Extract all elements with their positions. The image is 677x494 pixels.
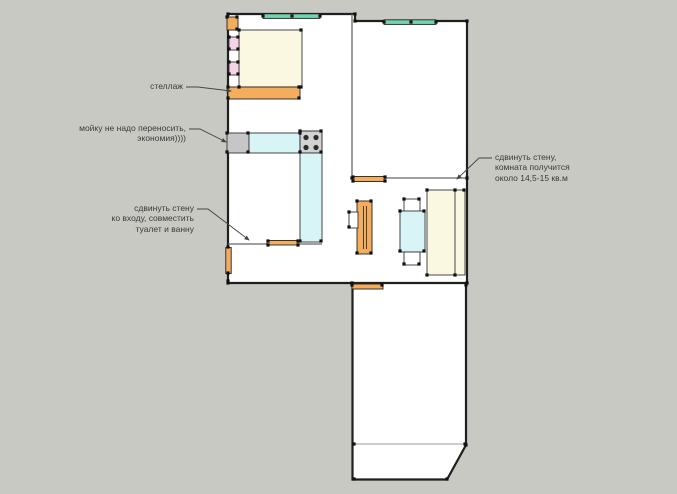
endpoint-dot [296, 239, 299, 242]
endpoint-dot [425, 273, 428, 276]
endpoint-dot [290, 14, 293, 17]
endpoint-dot [380, 283, 383, 286]
endpoint-dot [355, 199, 358, 202]
endpoint-dot [297, 96, 300, 99]
endpoint-dot [347, 210, 350, 213]
endpoint-dot [226, 279, 229, 282]
endpoint-dot [225, 15, 228, 18]
endpoint-dot [352, 442, 355, 445]
door-entrance [226, 248, 231, 274]
leader-line-sink [189, 129, 226, 142]
endpoint-dot [353, 12, 356, 15]
endpoint-dot [319, 129, 322, 132]
chair-top [404, 199, 420, 212]
endpoint-dot [266, 243, 269, 246]
endpoint-dot [318, 14, 321, 17]
wardrobe [357, 201, 372, 254]
endpoint-dot [299, 28, 302, 31]
floor-plan-canvas: стеллаж мойку не надо переносить, эконом… [0, 0, 677, 494]
endpoint-dot [298, 150, 301, 153]
endpoint-dot [319, 150, 322, 153]
endpoint-dot [355, 251, 358, 254]
endpoint-dot [353, 19, 356, 22]
sofa [427, 190, 465, 275]
endpoint-dot [445, 477, 448, 480]
endpoint-dot [422, 209, 425, 212]
endpoint-dot [236, 60, 239, 63]
stove-burner [303, 145, 308, 150]
endpoint-dot [417, 262, 420, 265]
kitchen-counter-top [249, 133, 300, 153]
endpoint-dot [409, 20, 412, 23]
endpoint-dot [226, 85, 229, 88]
endpoint-dot [434, 20, 437, 23]
endpoint-dot [465, 19, 468, 22]
endpoint-dot [453, 188, 456, 191]
endpoint-dot [261, 14, 264, 17]
endpoint-dot [425, 188, 428, 191]
endpoint-dot [227, 60, 230, 63]
stove-burner [303, 135, 308, 140]
endpoint-dot [369, 251, 372, 254]
door-room [353, 177, 385, 182]
endpoint-dot [246, 150, 249, 153]
door-balcony [352, 284, 383, 289]
floor-plan-drawing [0, 0, 677, 494]
endpoint-dot [351, 179, 354, 182]
bed [239, 30, 302, 87]
endpoint-dot [465, 176, 468, 179]
annotation-shelf: стеллаж [150, 81, 183, 91]
endpoint-dot [383, 179, 386, 182]
door-kitchen [267, 241, 298, 246]
endpoint-dot [402, 262, 405, 265]
stove-burner [313, 135, 318, 140]
annotation-entry-wall: сдвинуть стену ко входу, совместить туал… [112, 203, 194, 234]
endpoint-dot [350, 283, 353, 286]
endpoint-dot [266, 239, 269, 242]
endpoint-dot [296, 243, 299, 246]
sink [227, 133, 249, 153]
endpoint-dot [462, 188, 465, 191]
endpoint-dot [383, 175, 386, 178]
endpoint-dot [226, 245, 229, 248]
endpoint-dot [227, 35, 230, 38]
endpoint-dot [453, 273, 456, 276]
annotation-room-wall: сдвинуть стену, комната получится около … [495, 152, 570, 183]
leader-line-shelf [186, 87, 231, 91]
endpoint-dot [237, 85, 240, 88]
kitchen-counter-side [300, 153, 322, 242]
stove-burner [313, 145, 318, 150]
annotation-sink: мойку не надо переносить, экономия)))) [79, 123, 186, 144]
endpoint-dot [298, 129, 301, 132]
endpoint-dot [246, 131, 249, 134]
endpoint-dot [237, 28, 240, 31]
balcony-floor-area [353, 283, 467, 480]
endpoint-dot [352, 477, 355, 480]
endpoint-dot [236, 72, 239, 75]
endpoint-dot [226, 12, 229, 15]
endpoint-dot [236, 47, 239, 50]
endpoint-dot [319, 239, 322, 242]
endpoint-dot [347, 225, 350, 228]
endpoint-dot [422, 249, 425, 252]
endpoint-dot [464, 443, 467, 446]
endpoint-dot [402, 197, 405, 200]
shelving-unit [228, 87, 300, 99]
endpoint-dot [398, 249, 401, 252]
dining-table [400, 211, 425, 252]
endpoint-dot [464, 283, 467, 286]
endpoint-dot [225, 131, 228, 134]
stove [300, 131, 322, 153]
endpoint-dot [369, 199, 372, 202]
endpoint-dot [235, 15, 238, 18]
endpoint-dot [417, 197, 420, 200]
endpoint-dot [382, 20, 385, 23]
endpoint-dot [227, 47, 230, 50]
endpoint-dot [226, 96, 229, 99]
endpoint-dot [236, 35, 239, 38]
endpoint-dot [227, 72, 230, 75]
endpoint-dot [398, 209, 401, 212]
endpoint-dot [225, 150, 228, 153]
endpoint-dot [226, 271, 229, 274]
endpoint-dot [351, 175, 354, 178]
endpoint-dot [297, 85, 300, 88]
